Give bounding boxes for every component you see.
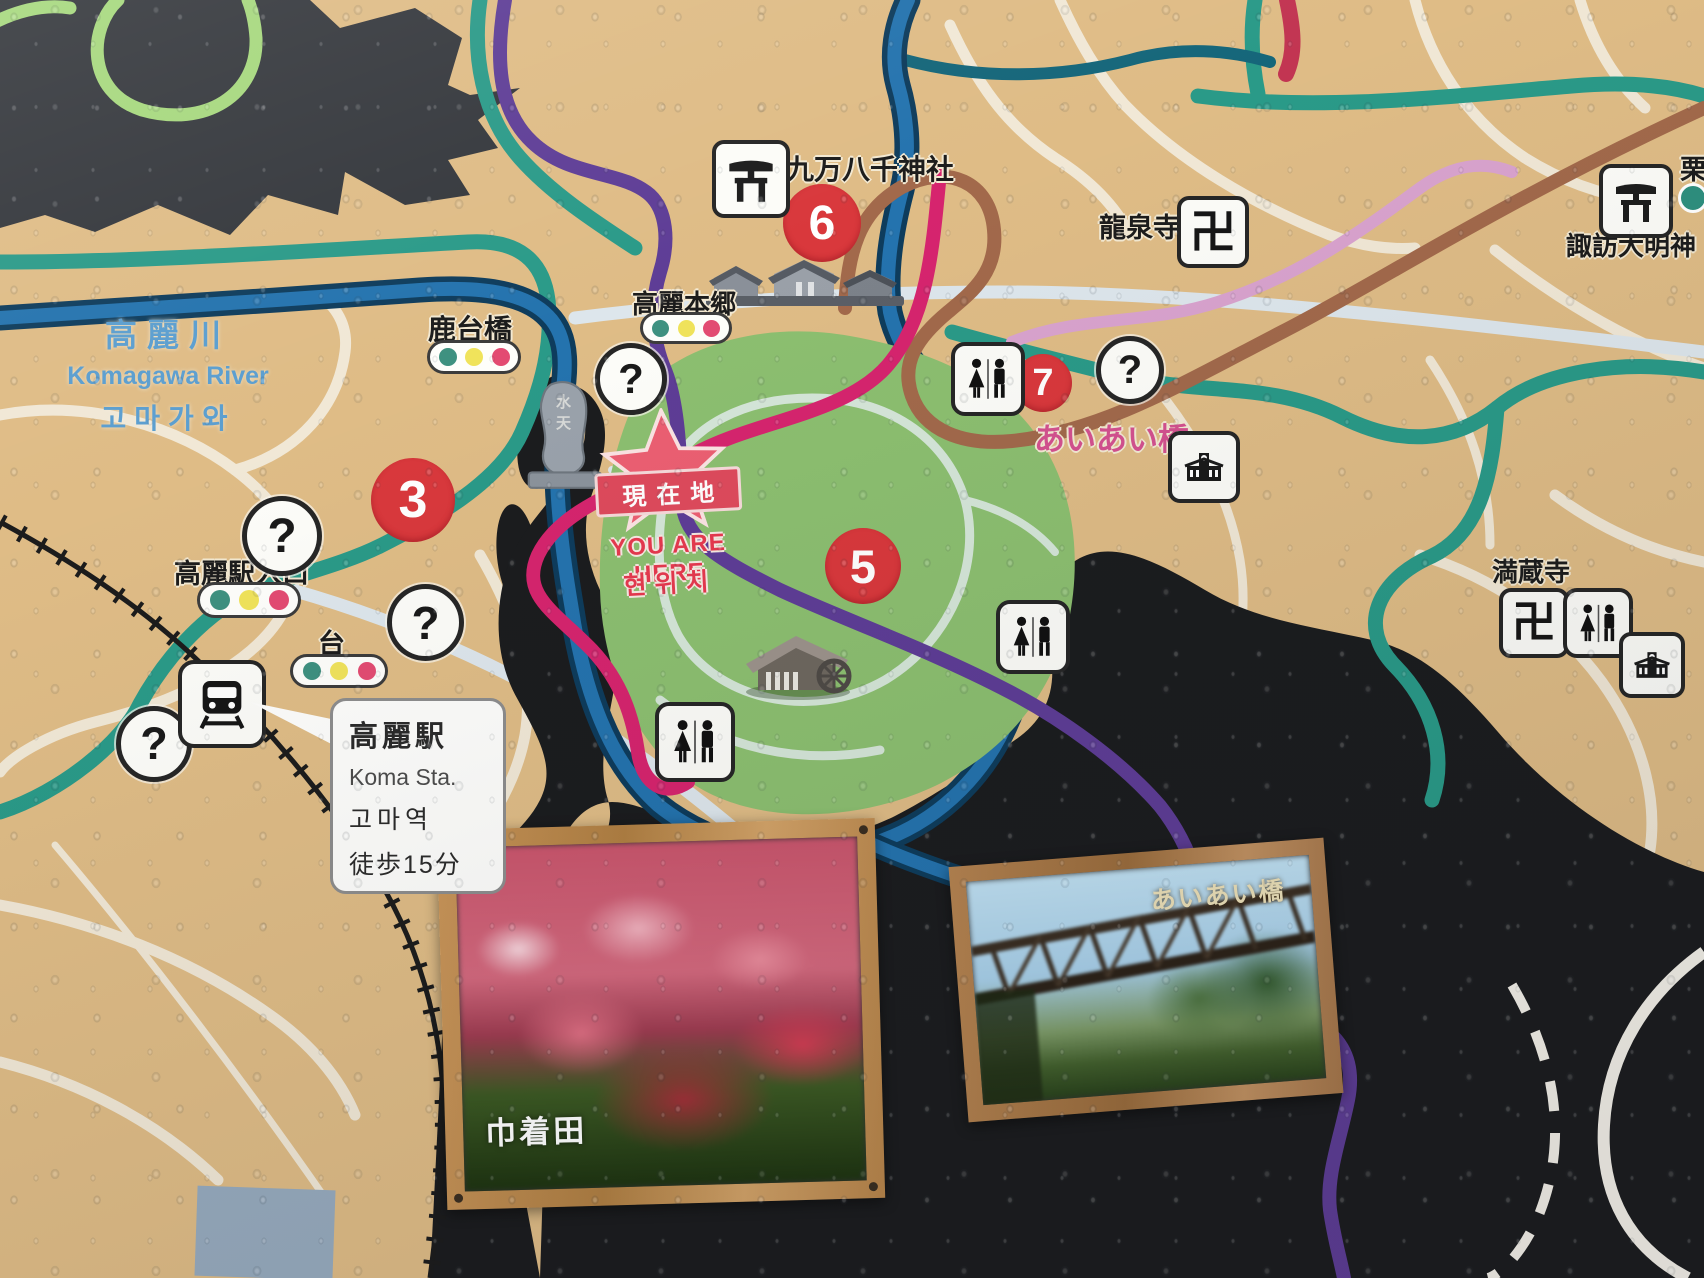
photo-aiai-bridge: あいあい橋: [949, 838, 1344, 1123]
signal-yellow: [465, 348, 483, 366]
info-marker: ?: [242, 496, 322, 576]
watermill-illustration: [742, 624, 856, 702]
temple-manji-icon: 卍: [1177, 196, 1249, 268]
signal-yellow: [678, 320, 695, 337]
restroom-glyph: [963, 354, 1013, 404]
torii-glyph: [725, 153, 777, 205]
manji-glyph: 卍: [1190, 209, 1236, 255]
info-marker: ?: [595, 343, 667, 415]
signal-red: [269, 590, 289, 610]
label-ryusenji: 龍泉寺: [1099, 206, 1180, 245]
frame-screw: [859, 825, 868, 834]
label-kuri: 栗: [1680, 148, 1704, 187]
photo-image-bridge: あいあい橋: [966, 855, 1327, 1105]
river-name-ja: 高麗川: [22, 310, 314, 356]
building-block: [194, 1186, 335, 1278]
map-sign-photo: 高麗川 Komagawa River 고마가와 鹿台橋 高麗本郷 九万八千神社 …: [0, 0, 1704, 1278]
restroom-glyph: [1575, 600, 1622, 647]
signal-green: [210, 590, 230, 610]
crimson-route: [1286, 0, 1293, 74]
restroom-glyph: [1008, 612, 1058, 662]
monument-text: 水天: [552, 394, 573, 436]
school-glyph: [1180, 443, 1228, 491]
label-manzoji: 満蔵寺: [1492, 552, 1570, 589]
traffic-light-koma-hongo: [640, 312, 732, 344]
kuri-stop-dot: [1678, 183, 1704, 213]
restroom-icon: [655, 702, 735, 782]
river-name-en: Komagawa River: [22, 362, 314, 391]
signal-red: [358, 662, 376, 680]
spot-marker-5: 5: [825, 528, 901, 604]
label-kumanhassen-jinja: 九万八千神社: [786, 148, 954, 188]
school-glyph: [1630, 643, 1674, 687]
signal-green: [652, 320, 669, 337]
traffic-light-dai: [290, 654, 388, 688]
frame-screw: [454, 1194, 463, 1203]
you-are-here-group: 現在地 YOU ARE HERE 현위치: [579, 404, 753, 608]
river-name-block: 高麗川 Komagawa River 고마가와: [22, 310, 314, 437]
traffic-light-shikadaibashi: [427, 340, 521, 374]
photo-caption-kinchakuda: 巾着田: [485, 1105, 588, 1153]
restroom-icon: [996, 600, 1070, 674]
callout-ja: 高麗駅: [349, 713, 489, 755]
signal-yellow: [330, 662, 348, 680]
callout-en: Koma Sta.: [349, 764, 489, 791]
manji-glyph: 卍: [1512, 601, 1556, 645]
info-marker: ?: [1096, 336, 1164, 404]
river-name-ko: 고마가와: [22, 397, 314, 437]
station-callout: 高麗駅 Koma Sta. 고마역 徒歩15分: [330, 698, 506, 894]
photo-image-spider-lilies: 巾着田: [455, 836, 866, 1191]
torii-shrine-icon: [1599, 164, 1673, 238]
frame-screw: [869, 1182, 878, 1191]
torii-glyph: [1612, 177, 1660, 225]
school-icon: [1619, 632, 1685, 698]
label-aiaibashi-map: あいあい橋: [1034, 414, 1189, 459]
signal-green: [439, 348, 457, 366]
traffic-light-iriguchi: [197, 582, 301, 618]
info-marker: ?: [387, 584, 464, 661]
restroom-icon: [951, 342, 1025, 416]
signal-yellow: [239, 590, 259, 610]
signal-green: [303, 662, 321, 680]
callout-ko: 고마역: [349, 800, 489, 836]
temple-manji-icon: 卍: [1499, 588, 1569, 658]
signal-red: [703, 320, 720, 337]
train-station-icon: [178, 660, 266, 748]
torii-shrine-icon: [712, 140, 790, 218]
you-are-here-ko: 현위치: [587, 560, 753, 605]
train-glyph: [193, 675, 251, 733]
you-are-here-banner: 現在地: [594, 466, 742, 518]
callout-walk: 徒歩15分: [349, 845, 489, 881]
signal-red: [492, 348, 510, 366]
spot-marker-3: 3: [371, 458, 455, 542]
school-icon: [1168, 431, 1240, 503]
spot-marker-6: 6: [783, 184, 861, 262]
restroom-glyph: [668, 715, 722, 769]
